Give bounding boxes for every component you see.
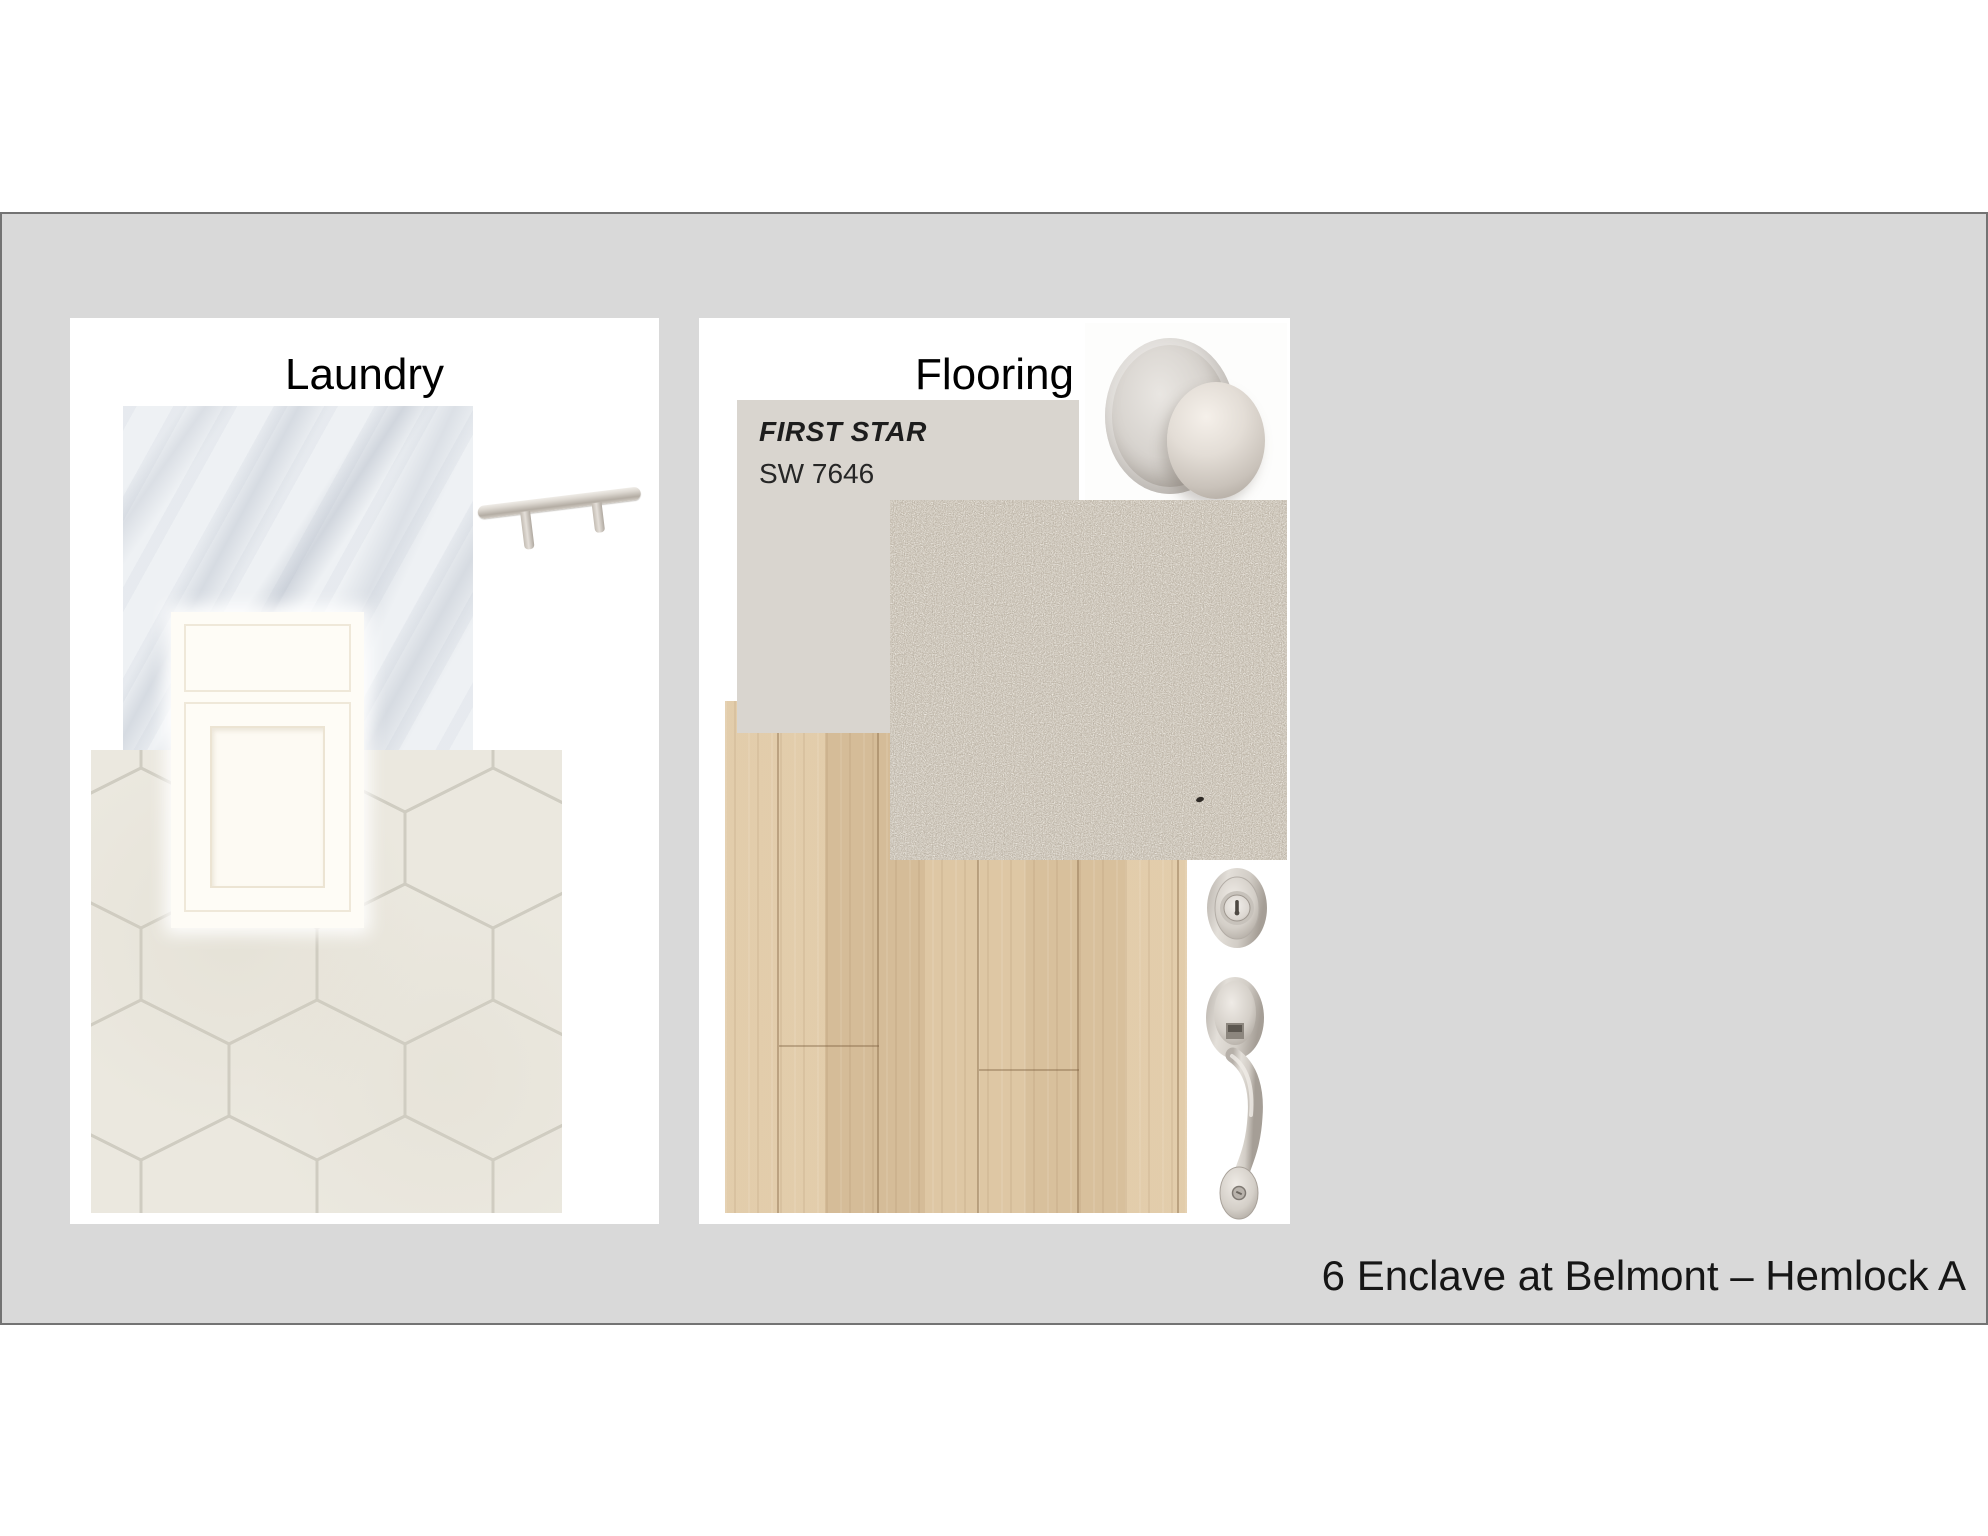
cabinet-drawer-front — [184, 624, 351, 692]
entry-handleset — [1195, 965, 1287, 1224]
bar-pull-rotated — [475, 470, 651, 580]
paint-code: SW 7646 — [759, 458, 874, 490]
slide-caption: 6 Enclave at Belmont – Hemlock A — [1322, 1252, 1966, 1300]
laundry-title: Laundry — [70, 352, 659, 398]
door-knob-swatch — [1085, 323, 1287, 500]
carpet-swatch — [890, 500, 1287, 860]
white-shaker-cabinet-swatch — [171, 612, 364, 928]
bar-pull-post-left — [520, 511, 535, 550]
selections-slide: Laundry — [0, 212, 1988, 1325]
bar-pull-hardware — [480, 480, 646, 570]
door-knob-ball — [1167, 382, 1265, 499]
plank-joint — [979, 1069, 1079, 1071]
bar-pull-post-right — [592, 502, 606, 533]
entry-hardware-swatch — [1195, 860, 1287, 1224]
cabinet-door — [184, 702, 351, 912]
paint-name: FIRST STAR — [759, 416, 927, 448]
deadbolt — [1195, 862, 1287, 962]
cabinet-door-panel — [210, 726, 325, 888]
laundry-board: Laundry — [70, 318, 659, 1224]
design-board-page: Laundry — [0, 0, 1988, 1536]
flooring-board: Flooring FIRST STAR SW 7646 — [699, 318, 1290, 1224]
carpet-texture — [890, 500, 1287, 860]
plank-joint — [779, 1045, 879, 1047]
bar-pull-bar — [477, 486, 641, 519]
